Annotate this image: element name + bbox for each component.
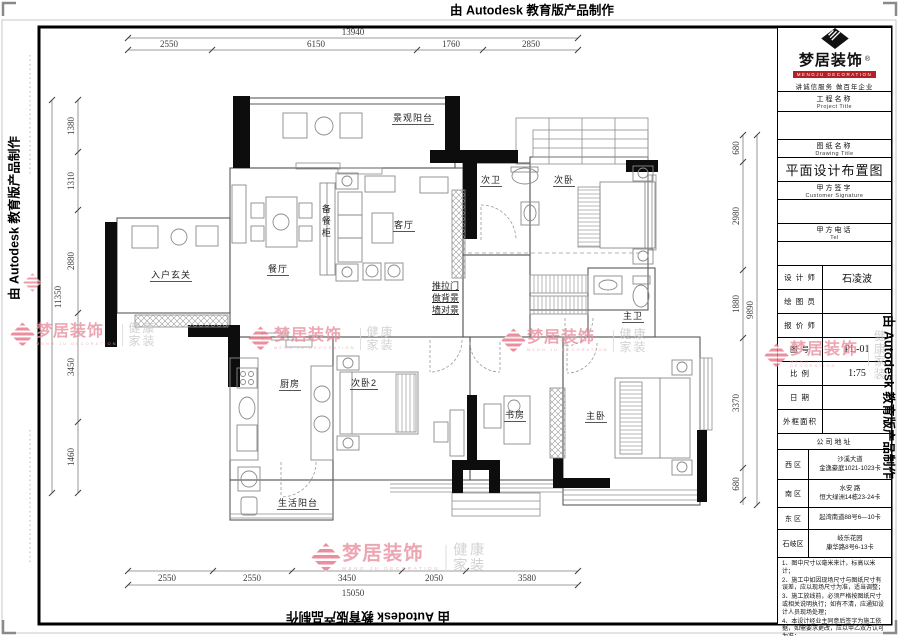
room-label-master-bath: 主卫 — [622, 311, 644, 323]
title-block: 梦居装饰® MENGJU DECORATION 讲诚信服务 做百年企业 工程名称… — [777, 28, 891, 624]
address-shiqi: 石岐区 岐乐花园康华路8号6-13卡 — [778, 530, 891, 558]
project-title-value — [778, 112, 891, 140]
note-item: 2、施工中如因现场尺寸与图纸尺寸有误差，应以现场尺寸为准，适当调整； — [782, 578, 887, 594]
note-item: 1、图中尺寸以毫米来计，标高以米计； — [782, 561, 887, 577]
room-label-balcony-service: 生活阳台 — [277, 498, 319, 510]
dim-right-seg-1: 680 — [731, 128, 741, 168]
dim-left-seg-1: 1380 — [66, 106, 76, 146]
row-area: 外框面积 — [778, 410, 891, 434]
room-label-bedroom3: 次卧2 — [350, 378, 378, 390]
registered-mark: ® — [865, 56, 870, 63]
address-south: 南 区 水安 路恒大绿洲14栋23-24卡 — [778, 480, 891, 508]
room-label-bedroom2: 次卧 — [553, 175, 575, 187]
row-draftsman: 绘 图 员 — [778, 290, 891, 314]
room-label-dining: 餐厅 — [267, 264, 289, 276]
row-date: 日 期 — [778, 386, 891, 410]
signature-header: 甲方签字 Customer Signature — [778, 182, 891, 200]
note-item: 4、本设计经业主同意后签字为施工依据，如需要求更改，应以甲乙双方认可为准； — [782, 619, 887, 636]
dim-top-seg-4: 2850 — [509, 39, 553, 49]
room-label-kitchen: 厨房 — [279, 379, 301, 391]
project-title-header: 工程名称 Project Title — [778, 92, 891, 112]
dim-bottom-total: 15050 — [331, 588, 375, 598]
drawing-title-value: 平面设计布置图 — [778, 158, 891, 182]
dim-left-seg-4: 3450 — [66, 347, 76, 387]
dim-bottom-seg-4: 2050 — [412, 573, 456, 583]
dim-top-seg-1: 2550 — [147, 39, 191, 49]
room-label-bath2: 次卫 — [480, 175, 502, 187]
room-label-sideboard: 备餐柜 — [320, 204, 330, 240]
address-header: 公司地址 — [778, 434, 891, 450]
dim-bottom-seg-3: 3450 — [325, 573, 369, 583]
note-item: 3、施工放线前，必须严格按图纸尺寸或相关说明执行；如有不清，应通知设计人员现场处… — [782, 594, 887, 617]
dim-right-seg-3: 1880 — [731, 284, 741, 324]
dim-right-seg-4: 3370 — [731, 383, 741, 423]
dim-right-seg-2: 2980 — [731, 196, 741, 236]
signature-value — [778, 200, 891, 224]
dim-left-seg-3: 2880 — [66, 241, 76, 281]
title-block-brand: 梦居装饰® MENGJU DECORATION 讲诚信服务 做百年企业 — [778, 28, 891, 92]
feature-wall-note: 推拉门做背景墙对景 — [432, 280, 462, 316]
address-west: 西 区 沙溪大道金逸豪庭1021-1023卡 — [778, 450, 891, 480]
dim-left-seg-2: 1310 — [66, 161, 76, 201]
furniture — [132, 113, 692, 515]
tel-header: 甲方电话 Tel — [778, 224, 891, 242]
brand-name-en: MENGJU DECORATION — [793, 71, 876, 78]
floor-plan-linework — [0, 0, 899, 636]
row-sheet-number: 图 号PL-01 — [778, 338, 891, 362]
wall-outlines — [117, 98, 700, 520]
dim-bottom-seg-2: 2550 — [230, 573, 274, 583]
dim-right-seg-5: 680 — [731, 464, 741, 504]
address-east: 东 区 起湾南道88号6—10卡 — [778, 508, 891, 530]
row-designer: 设 计 师石凌波 — [778, 266, 891, 290]
row-scale: 比 例1:75 — [778, 362, 891, 386]
hatched-furniture — [135, 187, 642, 458]
brand-name: 梦居装饰 — [799, 49, 863, 70]
dim-top-seg-2: 6150 — [294, 39, 338, 49]
drawing-sheet: 由 Autodesk 教育版产品制作 由 Autodesk 教育版产品制作 由 … — [0, 0, 899, 636]
row-estimator: 报 价 师 — [778, 314, 891, 338]
dim-left-total: 11350 — [53, 277, 63, 317]
room-label-living: 客厅 — [393, 220, 415, 232]
dim-left-seg-5: 1460 — [66, 437, 76, 477]
brand-slogan: 讲诚信服务 做百年企业 — [796, 81, 874, 91]
dim-right-total: 9890 — [745, 290, 755, 330]
dim-bottom-seg-1: 2550 — [145, 573, 189, 583]
dim-bottom-seg-5: 3580 — [505, 573, 549, 583]
room-label-foyer: 入户玄关 — [150, 270, 192, 282]
general-notes: 1、图中尺寸以毫米来计，标高以米计； 2、施工中如因现场尺寸与图纸尺寸有误差，应… — [778, 558, 891, 636]
room-label-study: 书房 — [504, 410, 526, 422]
dim-top-seg-3: 1760 — [429, 39, 473, 49]
tel-value — [778, 242, 891, 266]
room-label-balcony-top: 景观阳台 — [392, 113, 434, 125]
drawing-title-header: 图纸名称 Drawing Title — [778, 140, 891, 158]
brand-logo-icon — [820, 28, 850, 49]
dim-top-total: 13940 — [331, 27, 375, 37]
room-label-master-bedroom: 主卧 — [585, 411, 607, 423]
